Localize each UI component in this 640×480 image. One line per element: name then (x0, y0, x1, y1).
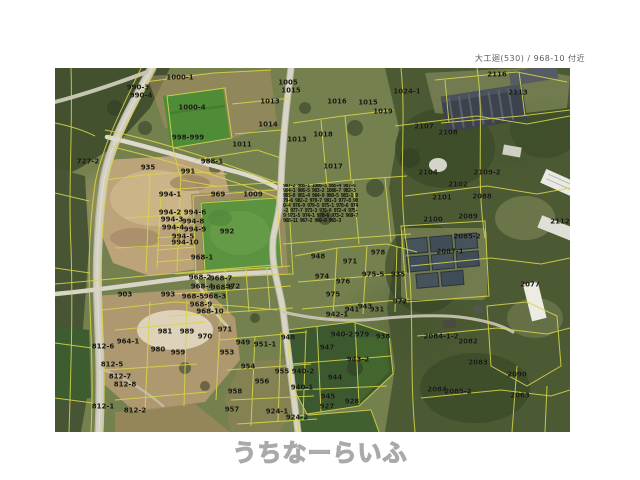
parcel-label-940-1: 940-1 (291, 385, 313, 392)
parcel-label-2082: 2082 (458, 339, 477, 346)
parcel-label-1014: 1014 (258, 122, 277, 129)
site-watermark: うちなーらいふ (233, 433, 408, 468)
parcel-label-1016: 1016 (327, 99, 346, 106)
parcel-label-976: 976 (336, 279, 351, 286)
parcel-label-1000-1: 1000-1 (166, 75, 193, 82)
parcel-label-948: 948 (281, 335, 296, 342)
parcel-label-968-2: 968-2 (189, 275, 211, 282)
parcel-label-951-1: 951-1 (254, 342, 276, 349)
page: 大工廻(530) / 968-10 付近 (0, 0, 640, 480)
parcel-label-2088: 2088 (472, 194, 491, 201)
parcel-label-2089: 2089 (458, 214, 477, 221)
parcel-label-935: 935 (141, 165, 156, 172)
parcel-label-942-1: 942-1 (326, 312, 348, 319)
parcel-label-992: 992 (220, 229, 235, 236)
parcel-label-2090: 2090 (507, 372, 526, 379)
parcel-label-990-3: 990-3 (127, 85, 149, 92)
parcel-label-940-2: 940-2 (331, 332, 353, 339)
parcel-label-979: 979 (355, 332, 370, 339)
parcel-label-727-2: 727-2 (77, 159, 99, 166)
parcel-label-1024-1: 1024-1 (393, 89, 420, 96)
parcel-label-964-1: 964-1 (117, 339, 139, 346)
parcel-label-971: 971 (218, 327, 233, 334)
parcel-label-928: 928 (345, 399, 360, 406)
parcel-label-994-8: 994-8 (182, 219, 204, 226)
parcel-label-938: 938 (376, 334, 391, 341)
parcel-label-975-5: 975-5 (362, 272, 384, 279)
parcel-label-1013: 1013 (287, 137, 306, 144)
parcel-label-2084-1-2: 2084-1-2 (423, 334, 458, 341)
parcel-label-945: 945 (321, 394, 336, 401)
parcel-label-968-1: 968-1 (191, 255, 213, 262)
parcel-label-994-6: 994-6 (184, 210, 206, 217)
parcel-label-968-7: 968-7 (210, 276, 232, 283)
parcel-label-903: 903 (118, 292, 133, 299)
parcel-label-998-999: 998-999 (172, 135, 204, 142)
parcel-label-1015: 1015 (358, 100, 377, 107)
parcel-label-980: 980 (151, 347, 166, 354)
parcel-label-935: 935 (391, 272, 406, 279)
parcel-label-947: 947 (320, 345, 335, 352)
parcel-label-2109-2: 2109-2 (473, 170, 500, 177)
parcel-label-1009: 1009 (243, 192, 262, 199)
parcel-label-968-3: 968-3 (204, 294, 226, 301)
parcel-label-978: 978 (371, 250, 386, 257)
parcel-label-2113: 2113 (508, 90, 527, 97)
parcel-label-1017: 1017 (323, 164, 342, 171)
parcel-label-2101: 2101 (432, 195, 451, 202)
parcel-label-994-1: 994-1 (159, 192, 181, 199)
parcel-label-994-4: 994-4 (162, 225, 184, 232)
parcel-label-2085-2: 2085-2 (444, 389, 471, 396)
parcel-label-957: 957 (225, 407, 240, 414)
parcel-label-1018: 1018 (313, 132, 332, 139)
parcel-label-975: 975 (326, 292, 341, 299)
parcel-label-953: 953 (220, 350, 235, 357)
parcel-label-949: 949 (236, 340, 251, 347)
parcel-label-812-5: 812-5 (101, 362, 123, 369)
parcel-label-2100: 2100 (423, 217, 442, 224)
parcel-label-1015: 1015 (281, 88, 300, 95)
parcel-label-924-2: 924-2 (286, 415, 308, 422)
parcel-label-993: 993 (161, 292, 176, 299)
map-title: 大工廻(530) / 968-10 付近 (475, 53, 585, 64)
parcel-label-989: 989 (180, 329, 195, 336)
parcel-label-956: 956 (255, 379, 270, 386)
parcel-label-812-7: 812-7 (109, 374, 131, 381)
parcel-label-2104: 2104 (418, 170, 437, 177)
parcel-label-968-10: 968-10 (196, 309, 223, 316)
parcel-label-2108: 2108 (438, 130, 457, 137)
parcel-label-972: 972 (226, 284, 241, 291)
parcel-label-971: 971 (343, 259, 358, 266)
parcel-label-2077: 2077 (520, 282, 539, 289)
parcel-label-940-2: 940-2 (292, 369, 314, 376)
dense-label-cluster: 987-2 986-1 1086-3 985-4 987-6 984-1 986… (283, 184, 359, 252)
parcel-label-948: 948 (311, 254, 326, 261)
parcel-label-1011: 1011 (232, 142, 251, 149)
parcel-label-968-5: 968-5 (182, 294, 204, 301)
parcel-label-927: 927 (320, 404, 335, 411)
parcel-label-959: 959 (171, 350, 186, 357)
parcel-label-2083: 2083 (468, 360, 487, 367)
parcel-label-943-2: 943-2 (347, 357, 369, 364)
parcel-label-944: 944 (328, 375, 343, 382)
parcel-label-994-3: 994-3 (161, 217, 183, 224)
parcel-label-1005: 1005 (278, 80, 297, 87)
parcel-label-972: 972 (393, 299, 408, 306)
parcel-label-994-10: 994-10 (171, 240, 198, 247)
aerial-map-image: 990-3990-41000-11000-41011998-999988-193… (55, 68, 570, 432)
parcel-label-2107: 2107 (414, 124, 433, 131)
parcel-label-1019: 1019 (373, 109, 392, 116)
parcel-label-812-8: 812-8 (114, 382, 136, 389)
parcel-label-2087-1: 2087-1 (436, 249, 463, 256)
parcel-label-2085-2: 2085-2 (453, 234, 480, 241)
parcel-label-2102: 2102 (448, 182, 467, 189)
parcel-label-981: 981 (158, 329, 173, 336)
parcel-label-812-2: 812-2 (124, 408, 146, 415)
parcel-label-2063: 2063 (510, 393, 529, 400)
parcel-label-991: 991 (181, 169, 196, 176)
parcel-label-1000-4: 1000-4 (178, 105, 205, 112)
parcel-label-812-6: 812-6 (92, 344, 114, 351)
parcel-label-2116: 2116 (487, 72, 506, 79)
parcel-label-954: 954 (241, 364, 256, 371)
parcel-label-988-1: 988-1 (201, 159, 223, 166)
parcel-label-990-4: 990-4 (130, 93, 152, 100)
parcel-label-1013: 1013 (260, 99, 279, 106)
parcel-label-969: 969 (211, 192, 226, 199)
parcel-label-955: 955 (275, 369, 290, 376)
parcel-label-931: 931 (370, 307, 385, 314)
parcel-label-970: 970 (198, 334, 213, 341)
parcel-label-812-1: 812-1 (92, 404, 114, 411)
parcel-label-974: 974 (315, 274, 330, 281)
parcel-label-958: 958 (228, 389, 243, 396)
parcel-label-2112: 2112 (550, 219, 569, 226)
